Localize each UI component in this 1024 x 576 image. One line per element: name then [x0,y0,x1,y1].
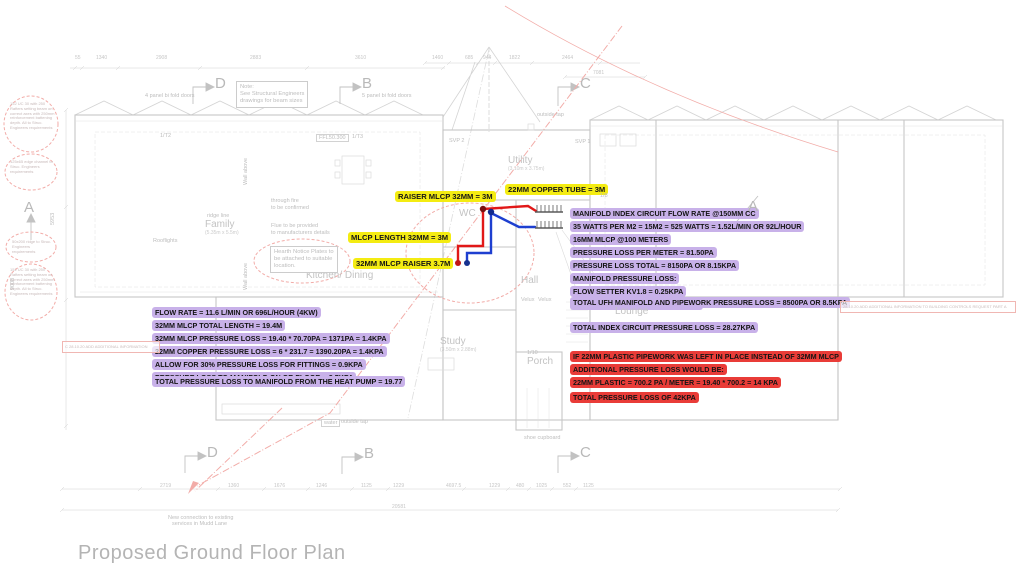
callout-purple-6: TOTAL INDEX CIRCUIT PRESSURE LOSS = 28.2… [570,321,758,334]
callout-text: MANIFOLD PRESSURE LOSS: [570,273,679,284]
callout-text: FLOW RATE = 11.6 L/MIN OR 696L/HOUR (4KW… [152,307,321,318]
callout-line: TOTAL PRESSURE LOSS TO MANIFOLD FROM THE… [152,375,405,387]
plan-note-4-panel-bi-fold-doors: 4 panel bi fold doors [145,93,195,99]
plan-note-1-t2: 1/T2 [160,133,171,139]
plan-note-ffl50-300: FFL50.300 [316,134,349,142]
callout-line: FLOW RATE = 11.6 L/MIN OR 696L/HOUR (4KW… [152,306,390,318]
callout-text: TOTAL INDEX CIRCUIT PRESSURE LOSS = 28.2… [570,322,758,333]
drawing-canvas: RAISER MLCP 32MM = 3M22MM COPPER TUBE = … [0,0,1024,576]
dimension-label: 1340 [96,55,107,61]
callout-yellow-3: 32MM MLCP RAISER 3.7M [353,257,453,270]
section-marker-c: C [580,445,591,460]
note-box-0: Note:See Structural Engineersdrawings fo… [236,81,308,108]
callout-line: PRESSURE LOSS PER METER = 81.50PA [570,246,804,258]
note-box-line: Note: [240,84,304,91]
callout-text: PRESSURE LOSS PER METER = 81.50PA [570,247,717,258]
room-label-hall: Hall [521,276,538,286]
section-marker-b: B [364,446,374,461]
plan-note-wall-above: Wall above [243,158,249,185]
section-marker-d: D [207,445,218,460]
room-dimensions: (5.35m x 5.5m) [205,230,239,236]
plan-note-to-be-confirmed: to be confirmed [271,205,309,211]
callout-purple-5: TOTAL UFH MANIFOLD AND PIPEWORK PRESSURE… [570,296,850,309]
dimension-label: 2464 [562,55,573,61]
callout-text: 22MM COPPER TUBE = 3M [505,184,608,195]
callout-line: MANIFOLD PRESSURE LOSS: [570,272,804,284]
dimension-label: 944 [483,55,491,61]
plan-note-svp-1: SVP 1 [575,139,591,145]
callout-purple-8: TOTAL PRESSURE LOSS TO MANIFOLD FROM THE… [152,375,405,388]
dimension-label: 3610 [355,55,366,61]
callout-red-10: TOTAL PRESSURE LOSS OF 42KPA [570,391,699,404]
callout-text: TOTAL UFH MANIFOLD AND PIPEWORK PRESSURE… [570,297,850,308]
plan-note-wall-above: Wall above [243,263,249,290]
plan-note-1-t3: 1/T3 [352,134,363,140]
callout-line: ADDITIONAL PRESSURE LOSS WOULD BE: [570,363,842,375]
callout-text: PRESSURE LOSS TOTAL = 8150PA OR 8.15KPA [570,260,739,271]
note-box-line: drawings for beam sizes [240,98,304,105]
callout-text: 16MM MLCP @100 METERS [570,234,671,245]
drawing-title: Proposed Ground Floor Plan [78,542,346,565]
dimension-label: 1229 [393,483,404,489]
callout-line: 35 WATTS PER M2 = 15M2 = 525 WATTS = 1.5… [570,220,804,232]
plan-note-flue-to-be-provided: Flue to be provided [271,223,318,229]
plan-note-services-in-mudd-lane: services in Mudd Lane [172,521,227,527]
callout-text: RAISER MLCP 32MM = 3M [395,191,496,202]
revision-row-0: C 28.10.20 ADD ADDITIONAL INFORMATION [62,341,160,353]
dimension-label: 1822 [509,55,520,61]
plan-note-1-10: 1/10 [527,350,538,356]
callout-text: TOTAL PRESSURE LOSS TO MANIFOLD FROM THE… [152,376,405,387]
callout-line: IF 22MM PLASTIC PIPEWORK WAS LEFT IN PLA… [570,350,842,362]
callout-text: ALLOW FOR 30% PRESSURE LOSS FOR FITTINGS… [152,359,366,370]
room-label-lounge: Lounge [615,307,648,317]
plan-note-shoe-cupboard: shoe cupboard [524,435,560,441]
section-marker-a: A [24,200,34,215]
callout-line: 32MM MLCP TOTAL LENGTH = 19.4M [152,319,390,331]
callout-line: 22MM PLASTIC = 700.2 PA / METER = 19.40 … [570,376,842,388]
callout-line: TOTAL INDEX CIRCUIT PRESSURE LOSS = 28.2… [570,321,758,333]
callout-line: PRESSURE LOSS TOTAL = 8150PA OR 8.15KPA [570,259,804,271]
dimension-label: 552 [563,483,571,489]
dimension-label: 1360 [228,483,239,489]
room-label-porch: Porch [527,357,553,367]
dimension-label: 1676 [274,483,285,489]
room-name: Study [440,337,476,347]
callout-text: IF 22MM PLASTIC PIPEWORK WAS LEFT IN PLA… [570,351,842,362]
dimension-label: 7081 [593,70,604,76]
plan-note-through-fire: through fire [271,198,299,204]
section-marker-c: C [580,76,591,91]
callout-text: MLCP LENGTH 32MM = 3M [348,232,451,243]
dimension-label: 1460 [432,55,443,61]
room-label-utility: Utility(3.10m x 3.75m) [508,156,544,172]
section-marker-b: B [362,76,372,91]
callout-line: 22MM COPPER TUBE = 3M [505,183,608,195]
plan-note-svp-2: SVP 2 [449,138,465,144]
callout-text: 32MM MLCP TOTAL LENGTH = 19.4M [152,320,285,331]
dimension-label: 2719 [160,483,171,489]
room-name: Hall [521,276,538,286]
plan-note-5-panel-bi-fold-doors: 5 panel bi fold doors [362,93,412,99]
dimension-label: 4697.5 [446,483,461,489]
callout-text: MANIFOLD INDEX CIRCUIT FLOW RATE @150MM … [570,208,759,219]
callout-purple-7: FLOW RATE = 11.6 L/MIN OR 696L/HOUR (4KW… [152,306,390,384]
section-marker-a: A [748,199,758,214]
plan-note-velux: Velux [521,297,534,303]
callout-line: 22MM COPPER PRESSURE LOSS = 6 * 231.7 = … [152,345,390,357]
plan-note-water: water [321,419,340,427]
labels-layer: RAISER MLCP 32MM = 3M22MM COPPER TUBE = … [0,0,1024,576]
callout-red-9: IF 22MM PLASTIC PIPEWORK WAS LEFT IN PLA… [570,350,842,389]
callout-text: 35 WATTS PER M2 = 15M2 = 525 WATTS = 1.5… [570,221,804,232]
callout-yellow-0: RAISER MLCP 32MM = 3M [395,190,496,203]
callout-yellow-2: MLCP LENGTH 32MM = 3M [348,231,451,244]
note-box-line: be attached to suitable [274,256,334,263]
callout-line: 16MM MLCP @100 METERS [570,233,804,245]
callout-line: ALLOW FOR 30% PRESSURE LOSS FOR FITTINGS… [152,358,390,370]
revision-row-1: 28.10.20 ADD ADDITIONAL INFORMATION TO B… [840,301,1016,313]
room-name: Utility [508,156,544,166]
plan-note-rooflights: Rooflights [153,238,177,244]
revision-cloud-text-2: 50x200 ridge to Struc. Engineers require… [12,240,54,254]
room-label-family: Family(5.35m x 5.5m) [205,220,239,236]
revision-cloud-text-1: 125x65 edge channel to Struc. Engineers … [10,160,54,174]
plan-note-to-manufacturers-details: to manufacturers details [271,230,330,236]
dimension-label: 20581 [392,504,406,510]
callout-yellow-1: 22MM COPPER TUBE = 3M [505,183,608,196]
plan-note-ridge-line: ridge line [207,213,229,219]
room-dimensions: (3.50m x 2.88m) [440,347,476,353]
callout-text: ADDITIONAL PRESSURE LOSS WOULD BE: [570,364,727,375]
dimension-label: 1125 [583,483,594,489]
callout-text: 22MM PLASTIC = 700.2 PA / METER = 19.40 … [570,377,781,388]
revision-cloud-text-0: 152 UC 30 with 250 Rafters setting beam … [10,102,56,131]
plan-note-5953: 5953 [50,213,56,225]
callout-text: TOTAL PRESSURE LOSS OF 42KPA [570,392,699,403]
dimension-label: 2883 [250,55,261,61]
dimension-label: 685 [465,55,473,61]
plan-note-1-8: 1/8 [600,193,608,199]
dimension-label: 480 [516,483,524,489]
plan-note-outside-tap: outside tap [537,112,564,118]
callout-text: 22MM COPPER PRESSURE LOSS = 6 * 231.7 = … [152,346,387,357]
callout-line: MANIFOLD INDEX CIRCUIT FLOW RATE @150MM … [570,207,804,219]
dimension-label: 55 [75,55,81,61]
callout-line: TOTAL PRESSURE LOSS OF 42KPA [570,391,699,403]
plan-note-outside-tap: outside tap [341,419,368,425]
dimension-label: 1246 [316,483,327,489]
dimension-label: 1229 [489,483,500,489]
section-marker-d: D [215,76,226,91]
room-dimensions: (3.10m x 3.75m) [508,166,544,172]
note-box-line: location. [274,263,334,270]
callout-line: MLCP LENGTH 32MM = 3M [348,231,451,243]
dimension-label: 1025 [536,483,547,489]
callout-line: RAISER MLCP 32MM = 3M [395,190,496,202]
room-label-wc: WC [459,209,476,219]
room-name: Lounge [615,307,648,317]
plan-note-velux: Velux [538,297,551,303]
dimension-label: 1125 [361,483,372,489]
callout-text: 32MM MLCP RAISER 3.7M [353,258,453,269]
callout-line: 32MM MLCP PRESSURE LOSS = 19.40 * 70.70P… [152,332,390,344]
dimension-label: 2908 [156,55,167,61]
callout-line: 32MM MLCP RAISER 3.7M [353,257,453,269]
room-name: Family [205,220,239,230]
callout-text: 32MM MLCP PRESSURE LOSS = 19.40 * 70.70P… [152,333,390,344]
note-box-line: Hearth Notice Plates to [274,249,334,256]
note-box-line: See Structural Engineers [240,91,304,98]
room-label-study: Study(3.50m x 2.88m) [440,337,476,353]
revision-cloud-text-3: 152 UC 30 with 250 Rafters setting beam … [10,268,56,297]
room-name: Porch [527,357,553,367]
callout-line: TOTAL UFH MANIFOLD AND PIPEWORK PRESSURE… [570,296,850,308]
room-name: WC [459,209,476,219]
note-box-1: Hearth Notice Plates tobe attached to su… [270,246,338,273]
